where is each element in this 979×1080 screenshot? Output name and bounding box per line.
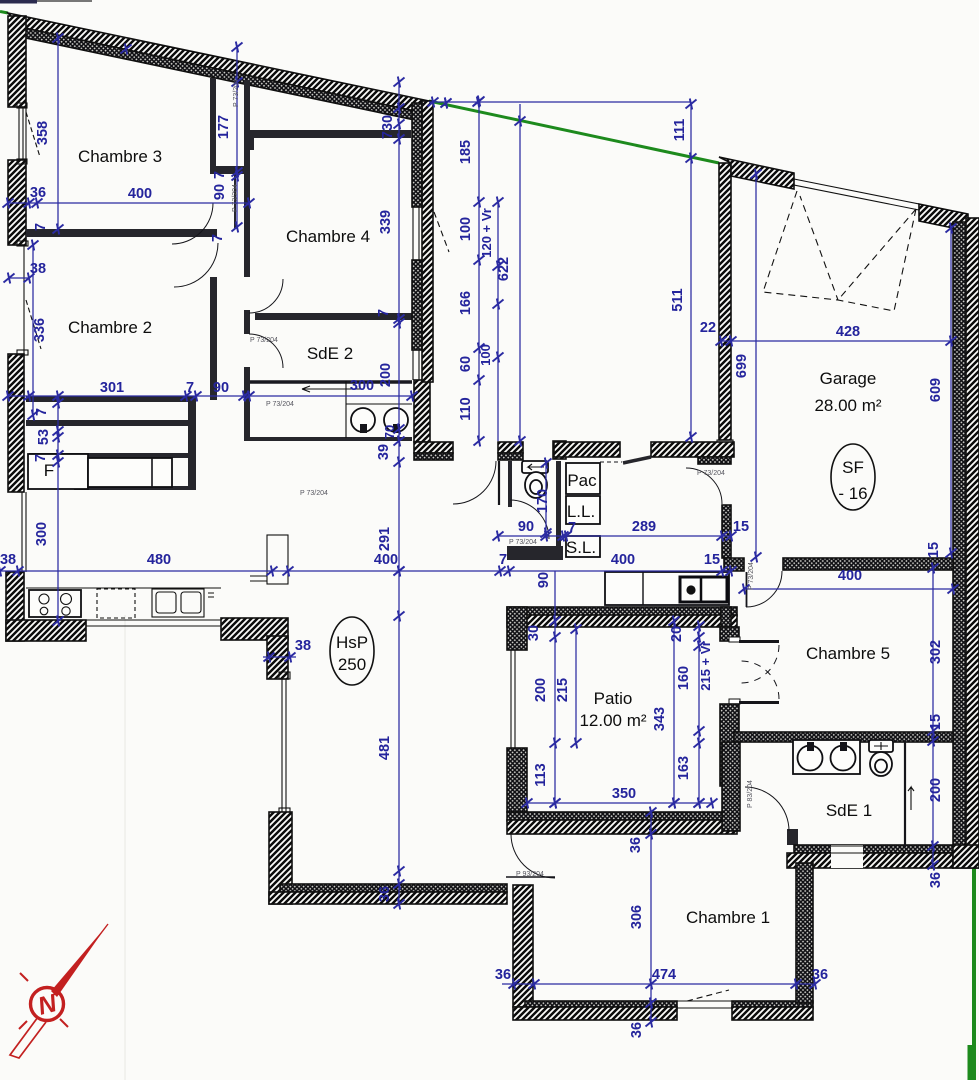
svg-text:P 73/204: P 73/204 <box>266 401 294 408</box>
svg-text:730: 730 <box>380 115 396 139</box>
svg-text:300: 300 <box>350 378 374 394</box>
svg-text:20: 20 <box>669 626 685 642</box>
svg-text:100: 100 <box>478 344 493 366</box>
svg-text:160: 160 <box>676 666 692 690</box>
svg-text:302: 302 <box>928 640 944 664</box>
svg-text:Chambre 2: Chambre 2 <box>68 318 152 337</box>
svg-text:36: 36 <box>812 967 828 983</box>
svg-text:15: 15 <box>733 519 749 535</box>
svg-text:400: 400 <box>128 186 152 202</box>
svg-text:400: 400 <box>374 552 398 568</box>
svg-text:12.00 m²: 12.00 m² <box>579 711 646 730</box>
svg-text:38: 38 <box>0 552 16 568</box>
svg-text:Patio: Patio <box>594 689 633 708</box>
svg-text:39: 39 <box>376 444 392 460</box>
svg-text:339: 339 <box>378 210 394 234</box>
svg-text:291: 291 <box>377 527 393 551</box>
svg-text:343: 343 <box>652 707 668 731</box>
svg-text:7: 7 <box>210 234 226 242</box>
svg-text:215: 215 <box>555 678 571 702</box>
svg-text:7: 7 <box>33 454 49 462</box>
svg-text:SdE 2: SdE 2 <box>307 344 353 363</box>
svg-text:215 + Vr: 215 + Vr <box>698 641 713 691</box>
svg-text:P 73/204: P 73/204 <box>233 79 240 107</box>
svg-text:P 73/204: P 73/204 <box>697 470 725 477</box>
svg-text:Garage: Garage <box>820 369 877 388</box>
svg-text:185: 185 <box>458 140 474 164</box>
svg-text:166: 166 <box>458 291 474 315</box>
svg-text:7: 7 <box>499 552 507 568</box>
svg-text:481: 481 <box>377 736 393 760</box>
svg-text:P 73/204: P 73/204 <box>748 562 755 590</box>
svg-text:Pac: Pac <box>567 471 597 490</box>
svg-text:P 73/204: P 73/204 <box>300 490 328 497</box>
svg-text:120 + Vr: 120 + Vr <box>479 208 494 258</box>
svg-text:480: 480 <box>147 552 171 568</box>
svg-text:7: 7 <box>33 223 49 231</box>
svg-text:400: 400 <box>838 568 862 584</box>
svg-text:250: 250 <box>338 655 366 674</box>
svg-text:15: 15 <box>928 714 944 730</box>
svg-text:15: 15 <box>704 552 720 568</box>
svg-text:90: 90 <box>518 519 534 535</box>
svg-text:511: 511 <box>670 288 686 311</box>
svg-text:428: 428 <box>836 324 860 340</box>
svg-text:7: 7 <box>186 380 194 396</box>
svg-text:336: 336 <box>32 318 48 342</box>
svg-text:38: 38 <box>30 261 46 277</box>
svg-text:22: 22 <box>700 320 716 336</box>
svg-text:53: 53 <box>36 429 52 445</box>
svg-text:Chambre 5: Chambre 5 <box>806 644 890 663</box>
svg-text:HsP: HsP <box>336 633 368 652</box>
svg-text:38: 38 <box>295 638 311 654</box>
svg-text:300: 300 <box>34 522 50 546</box>
svg-text:36: 36 <box>377 886 393 902</box>
svg-text:7: 7 <box>212 171 228 179</box>
svg-text:111: 111 <box>672 119 688 142</box>
svg-text:36: 36 <box>628 837 644 853</box>
svg-text:200: 200 <box>533 678 549 702</box>
svg-text:301: 301 <box>100 380 124 396</box>
svg-text:200: 200 <box>928 778 944 802</box>
svg-text:7: 7 <box>34 408 50 416</box>
svg-text:699: 699 <box>734 354 750 378</box>
svg-text:SF: SF <box>842 458 864 477</box>
svg-text:F: F <box>44 461 54 480</box>
svg-text:90: 90 <box>536 572 552 588</box>
svg-text:15: 15 <box>926 542 942 558</box>
svg-text:100: 100 <box>458 217 474 241</box>
svg-text:SdE 1: SdE 1 <box>826 801 872 820</box>
svg-text:P 83/204: P 83/204 <box>747 780 754 808</box>
svg-text:113: 113 <box>533 763 549 786</box>
svg-text:306: 306 <box>629 905 645 929</box>
svg-text:P 73/204: P 73/204 <box>509 539 537 546</box>
svg-text:P 93/204: P 93/204 <box>516 871 544 878</box>
svg-text:622: 622 <box>496 257 512 281</box>
svg-text:30: 30 <box>526 625 542 641</box>
svg-text:110: 110 <box>458 397 474 420</box>
svg-text:7: 7 <box>376 309 392 317</box>
svg-text:P 73/204: P 73/204 <box>250 337 278 344</box>
svg-text:- 16: - 16 <box>838 484 867 503</box>
svg-text:Chambre 1: Chambre 1 <box>686 908 770 927</box>
svg-text:Chambre 3: Chambre 3 <box>78 147 162 166</box>
svg-text:36: 36 <box>495 967 511 983</box>
svg-text:36: 36 <box>30 185 46 201</box>
svg-text:289: 289 <box>632 519 656 535</box>
svg-text:400: 400 <box>611 552 635 568</box>
svg-text:P 73/204: P 73/204 <box>232 184 239 212</box>
svg-text:70: 70 <box>382 425 397 439</box>
svg-text:177: 177 <box>216 115 232 139</box>
svg-text:36: 36 <box>928 872 944 888</box>
svg-text:474: 474 <box>652 967 676 983</box>
svg-text:Chambre 4: Chambre 4 <box>286 227 370 246</box>
svg-text:60: 60 <box>458 356 474 372</box>
svg-text:200: 200 <box>378 363 394 387</box>
svg-text:28.00 m²: 28.00 m² <box>814 396 881 415</box>
svg-text:350: 350 <box>612 786 636 802</box>
svg-text:170: 170 <box>535 489 551 513</box>
svg-text:609: 609 <box>928 378 944 402</box>
svg-text:163: 163 <box>676 756 692 780</box>
svg-text:90: 90 <box>213 380 229 396</box>
svg-text:L.L.: L.L. <box>567 502 595 521</box>
svg-text:36: 36 <box>629 1022 645 1038</box>
svg-text:S.L.: S.L. <box>566 538 596 557</box>
svg-text:90: 90 <box>212 184 228 200</box>
svg-text:358: 358 <box>35 121 51 145</box>
